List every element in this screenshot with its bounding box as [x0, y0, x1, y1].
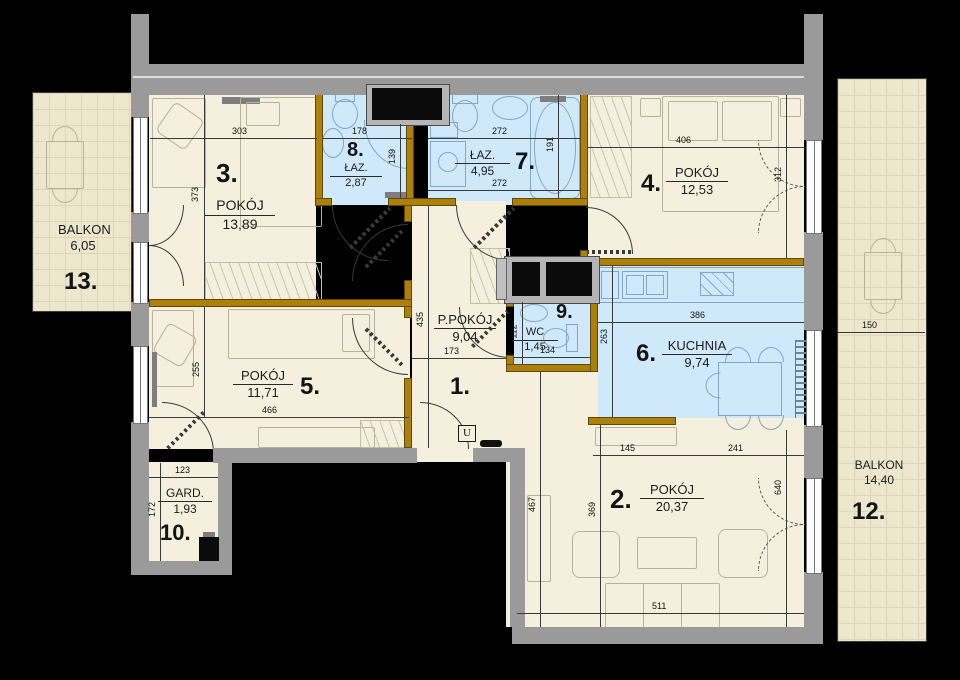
wc-name: WC	[512, 326, 558, 341]
dim-line	[600, 425, 601, 627]
balcony-13-area: 6,05	[55, 238, 111, 254]
dimension-label-123: 123	[175, 466, 190, 475]
dimension-label-640: 640	[774, 480, 783, 495]
room-5-number: 5.	[300, 375, 320, 399]
gard-10-number: 10.	[160, 522, 191, 544]
exterior-wall	[131, 212, 149, 242]
bath-8-name: ŁAZ.	[330, 162, 382, 177]
tv-cabinet	[595, 427, 677, 446]
dimension-label-272a: 272	[492, 127, 507, 136]
wc-label: WC 1,45	[512, 326, 558, 355]
wc-number: 9.	[556, 302, 573, 322]
fridge	[601, 271, 619, 299]
bath-7-label: ŁAZ. 4,95	[455, 148, 510, 179]
dim-line	[150, 138, 317, 139]
dim-line	[517, 613, 804, 614]
balcony-13-number: 13.	[64, 270, 97, 294]
exterior-wall	[131, 64, 823, 95]
exterior-wall	[804, 95, 823, 140]
dim-line	[786, 95, 787, 258]
wall	[588, 417, 676, 425]
dim-line	[598, 322, 804, 323]
dimension-label-139: 139	[388, 149, 397, 164]
balcony-door-window	[806, 140, 822, 234]
room-5-name: POKÓJ	[233, 368, 293, 385]
dimension-label-178: 178	[352, 127, 367, 136]
shaft	[546, 262, 592, 296]
window-sill	[152, 352, 157, 407]
window	[133, 242, 148, 304]
dim-line	[400, 124, 401, 198]
toilet	[332, 99, 358, 129]
washbasin	[492, 96, 528, 120]
wall	[404, 378, 412, 448]
wardrobe	[360, 420, 408, 448]
dim-line	[412, 358, 506, 359]
dimension-label-373: 373	[191, 187, 200, 202]
balcony-12-label: BALKON 14,40	[848, 458, 910, 488]
wall	[315, 88, 323, 205]
balcony-12-floor	[837, 78, 927, 642]
dimension-label-303: 303	[232, 127, 247, 136]
dimension-label-312: 312	[774, 167, 783, 182]
nightstand	[640, 98, 661, 117]
dim-line	[676, 455, 804, 456]
dimension-label-241: 241	[728, 444, 743, 453]
shaft-side-box	[496, 258, 507, 300]
wall	[404, 205, 412, 222]
wall	[580, 258, 804, 266]
bath-7-number: 7.	[515, 150, 535, 174]
dimension-label-386: 386	[690, 311, 705, 320]
bath-8-door-arc	[332, 205, 388, 261]
toilet-tank	[566, 324, 578, 352]
wall	[580, 88, 588, 205]
exterior-wall	[804, 232, 823, 330]
dimension-label-172: 172	[148, 502, 157, 517]
room-2-number: 2.	[610, 486, 632, 512]
sink-basin	[646, 275, 664, 295]
dimension-label-145: 145	[620, 444, 635, 453]
balcony-door-window	[806, 478, 822, 574]
entrance-symbol-letter: U	[463, 427, 471, 439]
wall	[590, 296, 598, 372]
exterior-wall	[804, 14, 823, 95]
exterior-wall	[512, 627, 823, 644]
bath-8-number: 8.	[347, 140, 364, 160]
wall	[315, 198, 332, 206]
dim-line	[558, 95, 559, 198]
room-4-number: 4.	[641, 172, 661, 196]
shaft	[512, 262, 540, 296]
kitchen-number: 6.	[636, 342, 656, 366]
dimension-label-435: 435	[416, 312, 425, 327]
wall	[506, 364, 598, 372]
dimension-label-191: 191	[546, 137, 555, 152]
toilet-tank	[452, 94, 478, 104]
room-3-area: 13,89	[205, 216, 275, 234]
wardrobe	[205, 262, 322, 304]
dim-line	[428, 205, 429, 448]
washbasin	[520, 304, 548, 322]
dimension-label-467: 467	[528, 497, 537, 512]
dimension-label-466: 466	[262, 406, 277, 415]
exterior-wall	[213, 448, 417, 463]
wall	[388, 198, 456, 206]
window	[806, 330, 822, 427]
entrance-symbol: U	[458, 425, 476, 442]
pillow	[246, 102, 280, 126]
bath-7-area: 4,95	[455, 164, 510, 179]
doormat	[480, 440, 502, 447]
balcony-13-table	[46, 141, 84, 189]
exterior-wall	[131, 302, 149, 346]
dimension-label-272b: 272	[492, 179, 507, 188]
coffee-table	[637, 537, 697, 569]
shelf	[258, 427, 375, 448]
bath-7-name: ŁAZ.	[455, 148, 510, 164]
balcony-12-number: 12.	[852, 500, 885, 524]
radiator	[795, 340, 806, 418]
exterior-wall	[218, 463, 232, 575]
balcony-13-label: BALKON 6,05	[55, 222, 111, 255]
wall	[149, 299, 412, 307]
room-4-name: POKÓJ	[666, 165, 728, 182]
boiler-lid	[203, 532, 215, 537]
exterior-wall	[804, 425, 823, 478]
dimension-label-173: 173	[444, 347, 459, 356]
dimension-label-263: 263	[600, 329, 609, 344]
balcony-12-area: 14,40	[848, 473, 910, 488]
window	[133, 346, 148, 424]
bath-8-area: 2,87	[330, 177, 382, 191]
dimension-label-369: 369	[588, 502, 597, 517]
hall-number: 1.	[450, 375, 470, 399]
pillow	[722, 101, 772, 141]
wall-seam	[133, 76, 821, 78]
hall-floor-entrance	[412, 448, 473, 462]
sink-basin	[626, 275, 644, 295]
exterior-wall	[510, 448, 525, 627]
kitchen-area: 9,74	[662, 355, 732, 371]
exterior-wall	[131, 95, 149, 117]
room-3-label: POKÓJ 13,89	[205, 197, 275, 233]
dim-line	[323, 138, 412, 139]
bath-8-label: ŁAZ. 2,87	[330, 162, 382, 191]
exterior-wall	[804, 572, 823, 627]
dim-line	[786, 430, 787, 627]
stove	[700, 272, 734, 296]
room-5-label: POKÓJ 11,71	[233, 368, 293, 402]
washbasin	[322, 128, 344, 158]
window	[133, 117, 148, 214]
hall-name: P.POKÓJ	[434, 312, 496, 329]
balcony-12-divider	[837, 332, 925, 333]
wall	[406, 120, 414, 205]
balcony-13-name: BALKON	[55, 222, 111, 238]
kitchen-label: KUCHNIA 9,74	[662, 338, 732, 372]
hall-area: 9,04	[434, 329, 496, 345]
dim-line	[149, 417, 409, 418]
dim-line	[514, 357, 590, 358]
room-4-door-leaf	[586, 250, 632, 254]
dimension-label-511: 511	[652, 602, 666, 611]
gard-10-name: GARD.	[158, 486, 212, 502]
room-4-label: POKÓJ 12,53	[666, 165, 728, 199]
exterior-wall	[131, 422, 149, 463]
room-2-name: POKÓJ	[640, 482, 704, 499]
dim-line	[204, 307, 205, 417]
room-4-area: 12,53	[666, 182, 728, 198]
dimension-label-406: 406	[676, 136, 691, 145]
dim-line	[593, 455, 676, 456]
room-2-area: 20,37	[640, 499, 704, 515]
gard-10-label: GARD. 1,93	[158, 486, 212, 517]
hall-label: P.POKÓJ 9,04	[434, 312, 496, 346]
nightstand	[780, 98, 801, 117]
dim-line	[612, 266, 613, 418]
shaft	[372, 88, 442, 120]
dimension-label-150: 150	[862, 321, 877, 330]
balcony-12-name: BALKON	[848, 458, 910, 473]
room-3-number: 3.	[216, 160, 238, 186]
room-3-name: POKÓJ	[205, 197, 275, 216]
dimension-label-255: 255	[192, 362, 201, 377]
floor-plan: U 303 178 272 406 373 139 272 191 312 43…	[0, 0, 960, 680]
dim-line	[588, 147, 804, 148]
gard-10-area: 1,93	[158, 502, 212, 517]
armchair	[572, 531, 620, 578]
wall	[512, 198, 588, 206]
boiler	[199, 537, 219, 561]
vent-bar	[540, 96, 566, 102]
dim-line	[540, 372, 541, 627]
room-5-area: 11,71	[233, 385, 293, 401]
wc-area: 1,45	[512, 341, 558, 355]
room-2-label: POKÓJ 20,37	[640, 482, 704, 516]
kitchen-name: KUCHNIA	[662, 338, 732, 355]
exterior-wall	[131, 561, 232, 575]
balcony-12-table	[864, 252, 902, 300]
